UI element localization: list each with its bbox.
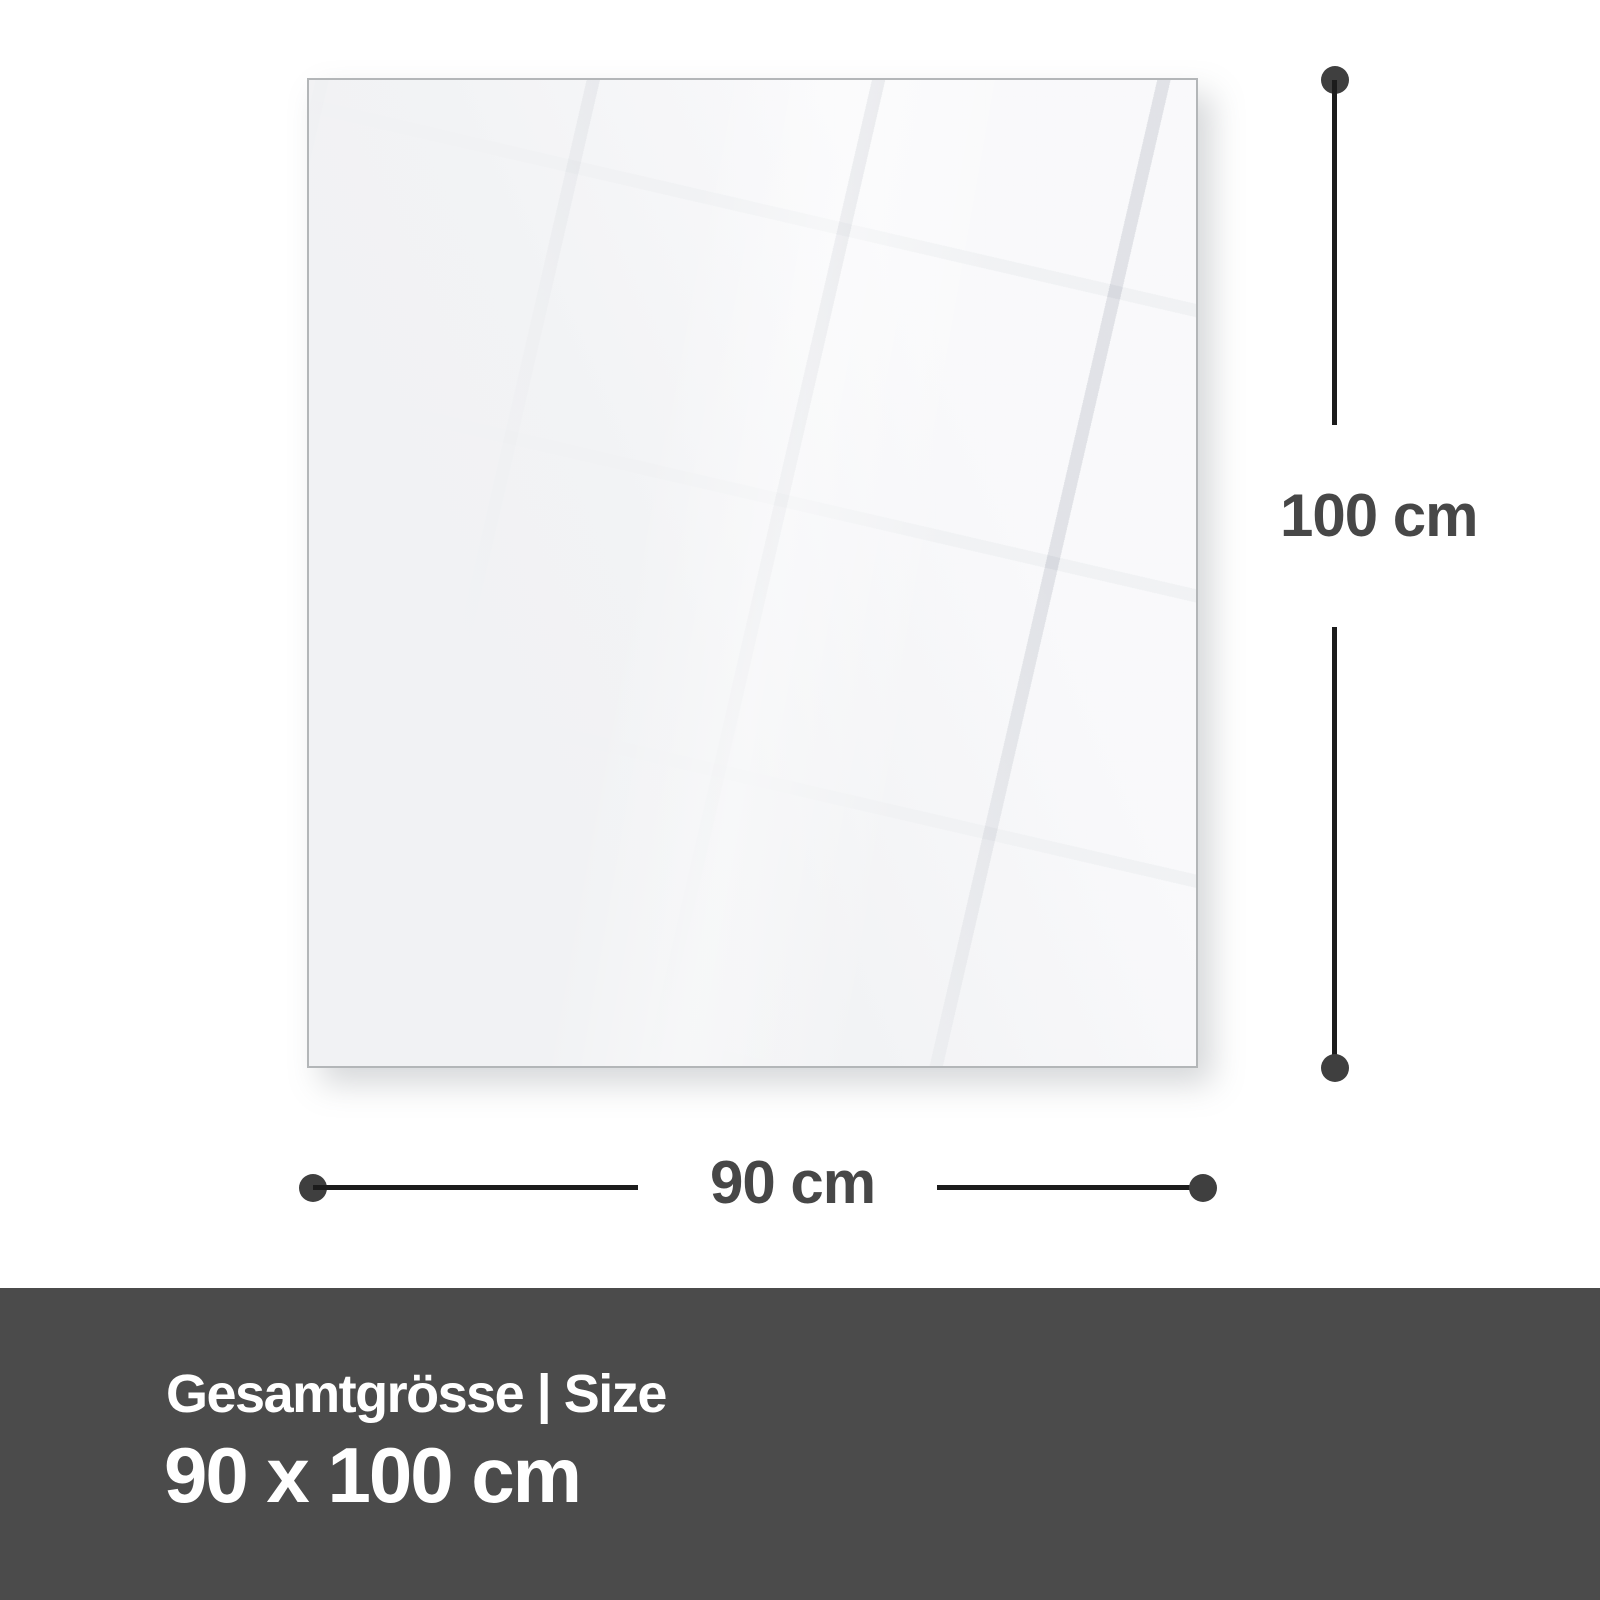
width-dimension-right-dot — [1189, 1174, 1217, 1202]
height-dimension-label: 100 cm — [1280, 486, 1478, 546]
height-dimension-bottom-dot — [1321, 1054, 1349, 1082]
height-dimension-line-lower — [1332, 627, 1337, 1068]
width-dimension-line-left — [313, 1185, 638, 1190]
width-dimension-label: 90 cm — [710, 1153, 875, 1213]
glass-sheen — [309, 80, 1196, 1066]
width-dimension-line-right — [937, 1185, 1203, 1190]
size-banner-title: Gesamtgrösse | Size — [166, 1367, 666, 1421]
product-size-diagram: 100 cm 90 cm Gesamtgrösse | Size 90 x 10… — [0, 0, 1600, 1600]
product-panel — [307, 78, 1198, 1068]
size-banner-value: 90 x 100 cm — [164, 1436, 580, 1514]
height-dimension-line-upper — [1332, 80, 1337, 425]
